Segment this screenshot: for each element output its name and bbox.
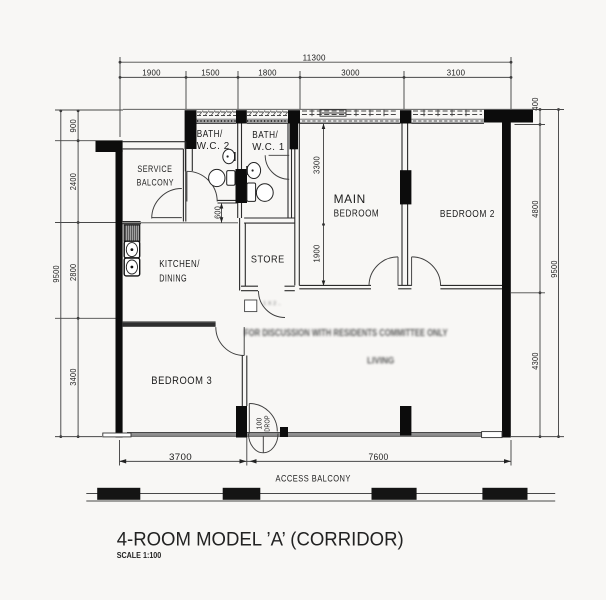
svg-text:3100: 3100 — [447, 68, 466, 78]
svg-text:4800: 4800 — [530, 200, 540, 217]
svg-text:DROP: DROP — [263, 415, 272, 432]
svg-text:9500: 9500 — [549, 260, 559, 277]
svg-text:W.C. 1: W.C. 1 — [252, 142, 284, 153]
svg-text:2800: 2800 — [68, 264, 78, 281]
svg-text:3700: 3700 — [169, 452, 192, 463]
svg-text:3400: 3400 — [68, 368, 78, 385]
svg-text:MAIN: MAIN — [334, 194, 366, 206]
svg-text:900: 900 — [68, 119, 78, 133]
svg-text:1 X 2 ..: 1 X 2 .. — [263, 301, 281, 307]
svg-text:BATH/: BATH/ — [197, 129, 223, 140]
svg-text:4300: 4300 — [530, 352, 540, 369]
svg-text:W.C. 2: W.C. 2 — [197, 141, 230, 152]
svg-text:FOR DISCUSSION WITH RESIDENTS: FOR DISCUSSION WITH RESIDENTS COMMITTEE … — [244, 328, 448, 339]
svg-text:1900: 1900 — [142, 68, 161, 78]
svg-text:3300: 3300 — [312, 156, 322, 174]
svg-text:400: 400 — [530, 97, 540, 111]
svg-text:BEDROOM 2: BEDROOM 2 — [440, 209, 495, 220]
svg-text:BALCONY: BALCONY — [137, 178, 174, 188]
svg-text:SCALE 1:100: SCALE 1:100 — [117, 551, 162, 560]
svg-text:1900: 1900 — [312, 245, 322, 263]
svg-text:KITCHEN/: KITCHEN/ — [159, 259, 200, 270]
svg-text:SERVICE: SERVICE — [137, 164, 172, 174]
svg-text:STORE: STORE — [251, 254, 285, 266]
svg-text:BATH/: BATH/ — [252, 130, 278, 141]
svg-text:BEDROOM: BEDROOM — [334, 209, 380, 220]
svg-text:4-ROOM MODEL ’A’ (CORRIDOR): 4-ROOM MODEL ’A’ (CORRIDOR) — [117, 528, 404, 550]
svg-text:7600: 7600 — [369, 452, 389, 463]
svg-text:1500: 1500 — [201, 68, 220, 78]
svg-text:1800: 1800 — [258, 68, 277, 78]
svg-text:9500: 9500 — [51, 265, 61, 282]
svg-text:11300: 11300 — [303, 52, 326, 62]
svg-text:2400: 2400 — [68, 173, 78, 190]
svg-text:ACCESS BALCONY: ACCESS BALCONY — [276, 473, 351, 484]
svg-text:600: 600 — [214, 206, 223, 219]
svg-text:LIVING: LIVING — [367, 356, 394, 367]
svg-text:3000: 3000 — [341, 68, 360, 78]
svg-text:BEDROOM 3: BEDROOM 3 — [151, 375, 212, 387]
svg-text:DINING: DINING — [159, 274, 187, 285]
